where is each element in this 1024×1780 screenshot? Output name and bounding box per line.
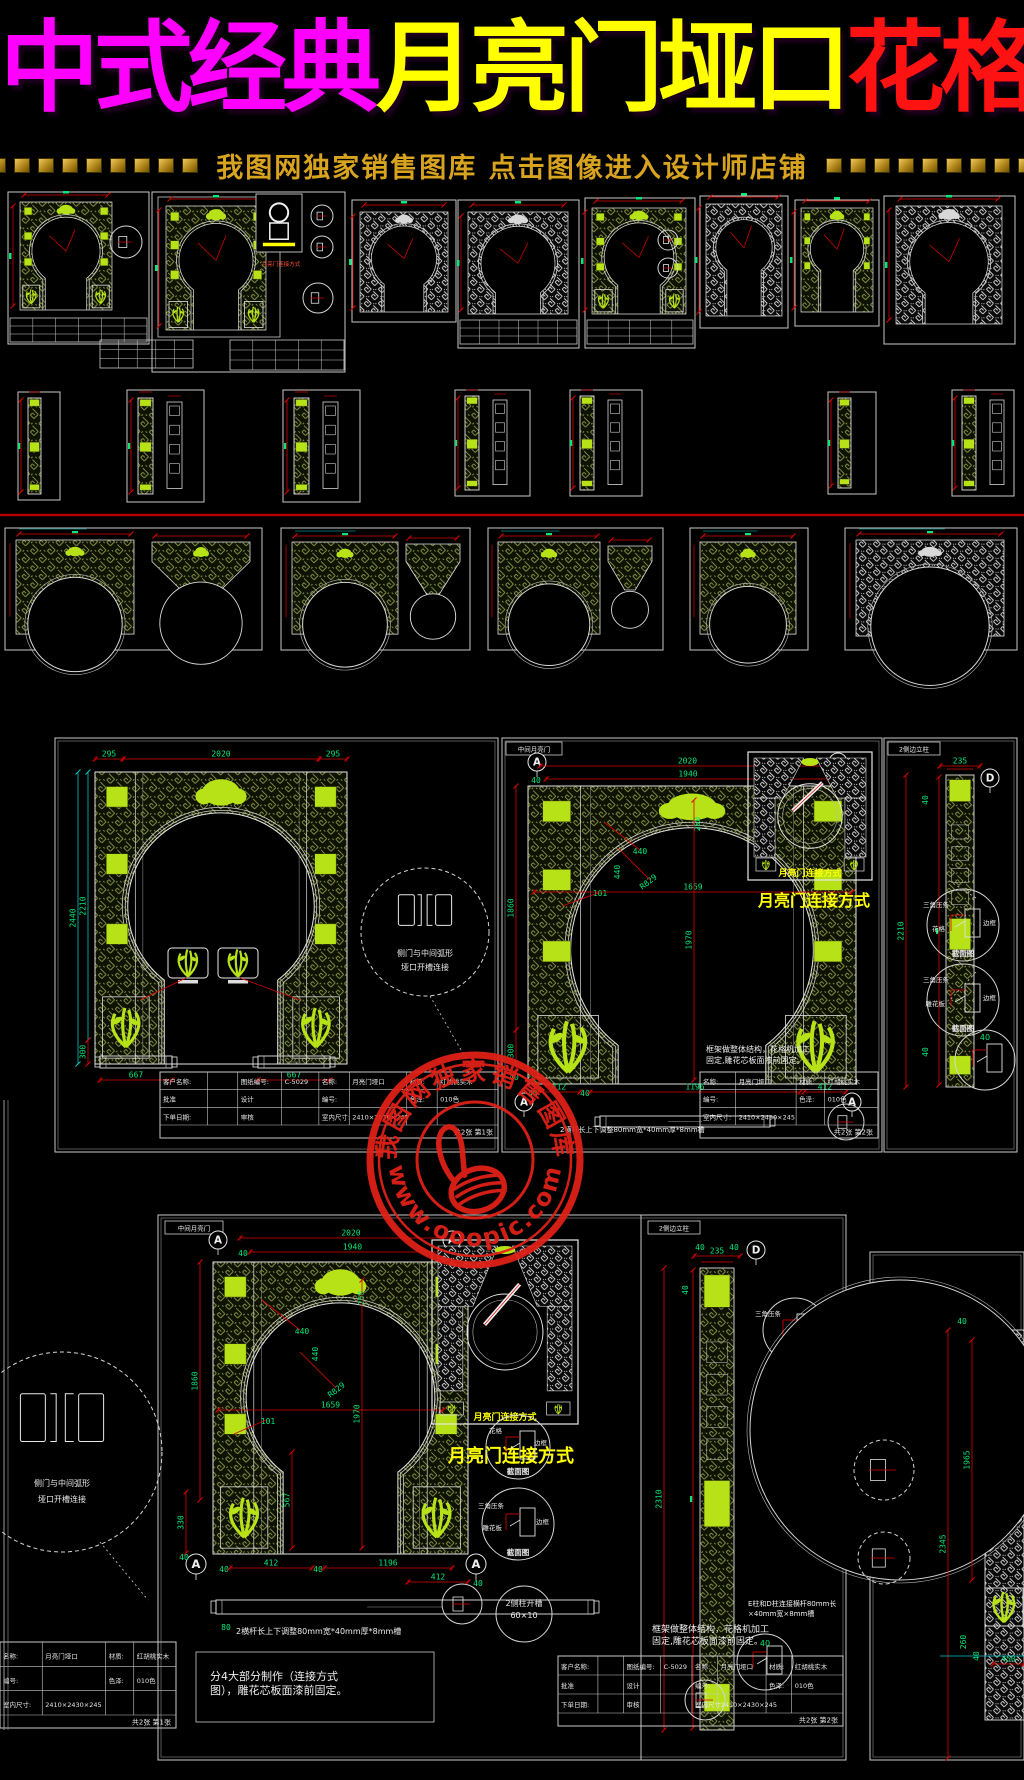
svg-text:2横杆长上下调整80mm宽*40mm厚*8mm槽: 2横杆长上下调整80mm宽*40mm厚*8mm槽 (236, 1626, 401, 1636)
moon-gate-drawing (155, 195, 266, 330)
svg-text:2020: 2020 (211, 750, 230, 759)
svg-text:图纸编号:: 图纸编号: (627, 1662, 655, 1671)
svg-text:月亮门垭口: 月亮门垭口 (739, 1077, 772, 1086)
svg-text:设计: 设计 (627, 1681, 641, 1690)
svg-text:2210: 2210 (897, 921, 906, 940)
svg-text:295: 295 (326, 750, 341, 759)
svg-text:101: 101 (593, 889, 608, 898)
svg-text:40: 40 (219, 1565, 229, 1574)
svg-text:2侧边立柱: 2侧边立柱 (899, 745, 930, 754)
arch-fragment-drawing (492, 531, 600, 669)
svg-text:1659: 1659 (321, 1401, 340, 1410)
svg-text:花格: 花格 (489, 1426, 503, 1435)
svg-text:235: 235 (953, 757, 968, 766)
column-strip-drawing (284, 392, 338, 495)
svg-text:材质:: 材质: (799, 1077, 814, 1086)
svg-text:垭口开槽连接: 垭口开槽连接 (38, 1494, 86, 1504)
svg-text:编号:: 编号: (703, 1095, 718, 1104)
annotation-text: 月亮门连接方式 (262, 260, 301, 268)
note-text: 2横杆长上下调整80mm宽*40mm厚*8mm槽 (236, 1626, 401, 1636)
svg-text:330: 330 (177, 1515, 186, 1530)
svg-text:D: D (986, 772, 995, 784)
moon-gate-drawing (9, 191, 112, 310)
svg-text:1970: 1970 (685, 930, 694, 949)
corner-fragment-drawing (608, 538, 652, 629)
svg-text:2侧柱开槽: 2侧柱开槽 (505, 1598, 542, 1608)
svg-text:2侧边立柱: 2侧边立柱 (659, 1224, 690, 1233)
svg-text:40: 40 (531, 776, 541, 785)
svg-text:截面图: 截面图 (952, 948, 975, 958)
svg-text:编号:: 编号: (3, 1676, 18, 1685)
title-block-table (230, 340, 344, 370)
svg-text:图），雕花芯板面漆前固定。: 图），雕花芯板面漆前固定。 (210, 1683, 348, 1697)
svg-text:40: 40 (980, 1033, 990, 1042)
svg-text:2410×2430×245: 2410×2430×245 (45, 1701, 101, 1709)
svg-text:E柱和D柱连接横杆80mm长: E柱和D柱连接横杆80mm长 (748, 1599, 836, 1608)
dim-label: R829 (326, 1380, 347, 1399)
svg-text:412: 412 (264, 1559, 279, 1568)
moon-gate-drawing (457, 201, 568, 314)
dimension-vertical: 1860 (507, 784, 519, 1033)
detail-circle (442, 1584, 482, 1624)
groove-joint-glyph (20, 1394, 103, 1442)
svg-text:月亮门连接方式: 月亮门连接方式 (472, 1411, 536, 1423)
dim-label: 40 (179, 1553, 189, 1562)
svg-text:40: 40 (313, 1565, 323, 1574)
carved-plaque (168, 948, 208, 984)
svg-text:室内尺寸:: 室内尺寸: (322, 1112, 350, 1121)
svg-text:40: 40 (473, 1579, 483, 1588)
svg-text:60×10: 60×10 (510, 1611, 537, 1620)
svg-text:260: 260 (357, 1291, 366, 1306)
svg-text:批准: 批准 (163, 1095, 177, 1104)
groove-joint-glyph (398, 895, 451, 926)
svg-text:红胡桃实木: 红胡桃实木 (137, 1652, 170, 1661)
dim-label: 40 (238, 1249, 248, 1258)
svg-text:40: 40 (179, 1553, 189, 1562)
note-text: 2横杆长上下调整80mm宽*40mm厚*8mm槽 (560, 1125, 705, 1134)
svg-text:材质:: 材质: (109, 1652, 124, 1661)
svg-text:A: A (214, 1234, 222, 1246)
svg-text:边框: 边框 (534, 1438, 548, 1447)
svg-text:室内尺寸:: 室内尺寸: (3, 1700, 31, 1709)
svg-text:审核: 审核 (627, 1700, 641, 1709)
svg-text:框架做整体结构，花格机加工: 框架做整体结构，花格机加工 (706, 1044, 810, 1054)
svg-text:批准: 批准 (561, 1681, 575, 1690)
dimension-vertical: 1860 (191, 1260, 203, 1503)
svg-text:材质:: 材质: (769, 1662, 784, 1671)
svg-text:2横杆长上下调整80mm宽*40mm厚*8mm槽: 2横杆长上下调整80mm宽*40mm厚*8mm槽 (560, 1125, 705, 1134)
svg-text:室内尺寸:: 室内尺寸: (695, 1700, 723, 1709)
dim-label: 40 (921, 795, 930, 805)
svg-text:80: 80 (221, 1623, 231, 1632)
carved-plaque (218, 948, 258, 984)
dim-label: 80 (221, 1623, 231, 1632)
svg-text:编号:: 编号: (322, 1095, 337, 1104)
svg-text:C-5029: C-5029 (285, 1078, 308, 1086)
svg-text:共2张 第2张: 共2张 第2张 (834, 1128, 873, 1137)
svg-text:截面图: 截面图 (507, 1547, 530, 1557)
dimension-vertical: 1970 (685, 798, 697, 1083)
svg-text:2210: 2210 (79, 896, 88, 915)
svg-text:1970: 1970 (353, 1404, 362, 1423)
detail-circle (311, 236, 333, 258)
svg-text:R829: R829 (638, 872, 659, 891)
connection-icon-box (256, 194, 302, 252)
svg-text:月亮门连接方式: 月亮门连接方式 (777, 867, 841, 879)
svg-text:1659: 1659 (683, 883, 702, 892)
svg-text:567: 567 (283, 1493, 292, 1508)
svg-text:2410×2430×245: 2410×2430×245 (739, 1113, 795, 1121)
arch-fragment-drawing (850, 529, 1004, 688)
svg-text:1196: 1196 (378, 1559, 397, 1568)
dim-label: 440 (311, 1347, 320, 1362)
svg-text:440: 440 (295, 1327, 310, 1336)
svg-text:中间月亮门: 中间月亮门 (178, 1224, 211, 1233)
svg-text:2020: 2020 (678, 757, 697, 766)
svg-text:固定,雕花芯板面漆前固定。: 固定,雕花芯板面漆前固定。 (652, 1635, 763, 1647)
dim-label: R829 (638, 872, 659, 891)
detail-circle (303, 283, 333, 313)
dimension-horizontal: 412 (406, 1573, 471, 1586)
moon-gate-drawing (885, 195, 1002, 324)
dimension-vertical: 2210 (79, 770, 91, 1043)
svg-text:设计: 设计 (241, 1095, 255, 1104)
svg-text:440: 440 (311, 1347, 320, 1362)
title-block-table (460, 320, 577, 344)
moon-gate-drawing (695, 193, 782, 316)
svg-text:侧门与中间弧形: 侧门与中间弧形 (34, 1478, 90, 1488)
svg-text:300: 300 (79, 1045, 88, 1060)
dimension-horizontal: 235 (938, 757, 983, 770)
detail-circle: 三角压条边框雕花板截面图 (478, 1488, 554, 1560)
svg-text:三角压条: 三角压条 (755, 1309, 782, 1318)
note-text: E柱和D柱连接横杆80mm长×40mm宽×8mm槽 (748, 1599, 836, 1618)
dim-label: 40 (531, 776, 541, 785)
svg-text:共2张 第1张: 共2张 第1张 (132, 1718, 171, 1727)
section-marker: A (528, 753, 546, 777)
dim-label: 440 (613, 865, 622, 880)
svg-text:边框: 边框 (536, 1517, 550, 1526)
svg-text:40: 40 (921, 795, 930, 805)
leader-line (100, 1542, 148, 1600)
svg-text:295: 295 (102, 750, 117, 759)
svg-text:667: 667 (129, 1071, 144, 1080)
svg-text:名称:: 名称: (703, 1077, 718, 1086)
svg-text:月亮门垭口: 月亮门垭口 (45, 1652, 78, 1661)
svg-text:440: 440 (633, 847, 648, 856)
svg-text:235: 235 (710, 1247, 725, 1256)
svg-text:412: 412 (431, 1573, 446, 1582)
svg-text:雕花板: 雕花板 (926, 999, 946, 1008)
svg-text:边框: 边框 (983, 993, 997, 1002)
svg-text:40: 40 (695, 1243, 705, 1252)
svg-text:色泽:: 色泽: (769, 1681, 784, 1690)
dimension-horizontal: 1196 (322, 1559, 455, 1572)
watermark-stamp: 我图网独家销售图库www.ooopic.com (370, 1055, 580, 1265)
svg-text:色泽:: 色泽: (109, 1676, 124, 1685)
svg-text:A: A (192, 1557, 201, 1571)
drawing-tag: 2侧边立柱 (648, 1221, 700, 1234)
svg-text:1940: 1940 (678, 770, 697, 779)
svg-text:截面图: 截面图 (952, 1023, 975, 1033)
leader-line (430, 996, 468, 1062)
svg-text:边框: 边框 (983, 918, 997, 927)
plant-carving (762, 860, 769, 870)
dim-label: 260 (357, 1291, 366, 1306)
svg-text:2345: 2345 (939, 1534, 948, 1553)
svg-text:1860: 1860 (507, 898, 516, 917)
detail-circle (311, 205, 333, 227)
column-strip-drawing (455, 390, 507, 491)
title-block-table (587, 320, 693, 344)
dimension-vertical: 567 (283, 1450, 295, 1551)
dim-label: 101 (593, 889, 608, 898)
dim-label: 40 (729, 1243, 739, 1252)
svg-text:40: 40 (681, 1285, 690, 1295)
svg-text:300: 300 (507, 1044, 516, 1059)
svg-text:三角压条: 三角压条 (923, 975, 950, 984)
plant-carving (555, 1404, 562, 1414)
dimension-horizontal: 412 (228, 1559, 315, 1572)
svg-text:2440: 2440 (69, 908, 78, 927)
svg-text:编号:: 编号: (695, 1681, 710, 1690)
moon-gate-drawing (213, 1262, 468, 1554)
svg-text:1940: 1940 (343, 1243, 362, 1252)
dimension-horizontal: 295 (93, 750, 126, 763)
svg-text:月亮门连接方式: 月亮门连接方式 (757, 891, 870, 910)
svg-text:客户名称:: 客户名称: (163, 1077, 191, 1086)
dim-label: 40 (957, 1317, 967, 1326)
svg-text:三角压条: 三角压条 (923, 900, 950, 909)
svg-text:40: 40 (921, 1047, 930, 1057)
svg-text:共2张 第2张: 共2张 第2张 (799, 1716, 838, 1725)
plant-carving (178, 949, 198, 976)
dim-label: 40 (681, 1285, 690, 1295)
dim-label: 40 (921, 1047, 930, 1057)
svg-text:垭口开槽连接: 垭口开槽连接 (401, 962, 449, 972)
svg-text:分4大部分制作（连接方式: 分4大部分制作（连接方式 (210, 1669, 338, 1683)
svg-text:侧门与中间弧形: 侧门与中间弧形 (397, 948, 453, 958)
plant-carving (228, 949, 248, 976)
dimension-vertical: 2440 (69, 770, 81, 1067)
dimension-horizontal: 295 (317, 750, 350, 763)
section-marker: A (209, 1231, 227, 1255)
dimension-horizontal: 1659 (216, 1401, 446, 1414)
dimension-vertical: 2210 (897, 773, 909, 1090)
arch-fragment-drawing (286, 531, 398, 670)
svg-text:色泽:: 色泽: (799, 1095, 814, 1104)
svg-text:260: 260 (959, 1635, 968, 1650)
svg-text:图纸编号:: 图纸编号: (241, 1077, 269, 1086)
title-block-table (10, 318, 147, 342)
svg-text:下单日期:: 下单日期: (561, 1700, 589, 1709)
dimension-vertical: 330 (177, 1490, 189, 1556)
dim-label: 40 (313, 1565, 323, 1574)
svg-text:三角压条: 三角压条 (478, 1501, 505, 1510)
svg-text:月亮门垭口: 月亮门垭口 (352, 1077, 385, 1086)
column-strip-drawing (690, 1262, 734, 1731)
svg-text:固定,雕花芯板面漆前固定。: 固定,雕花芯板面漆前固定。 (706, 1055, 805, 1065)
svg-text:月亮门连接方式: 月亮门连接方式 (262, 260, 301, 268)
column-strip-drawing (828, 392, 851, 489)
svg-text:A: A (472, 1557, 481, 1571)
side-wall-fragment (747, 1277, 1024, 1720)
detail-circle: 侧门与中间弧形垭口开槽连接 (361, 868, 489, 996)
svg-text:1965: 1965 (963, 1450, 972, 1469)
svg-text:R829: R829 (326, 1380, 347, 1399)
moon-gate-drawing (349, 201, 448, 312)
dimension-vertical: 1970 (353, 1278, 365, 1551)
corner-fragment-drawing (406, 536, 460, 640)
moon-gate-drawing (581, 197, 686, 314)
corner-fragment-drawing (152, 534, 250, 665)
section-marker: A (186, 1554, 206, 1580)
svg-text:2310: 2310 (655, 1489, 664, 1508)
svg-text:010色: 010色 (440, 1095, 459, 1104)
svg-text:1196: 1196 (685, 1083, 704, 1092)
svg-text:审核: 审核 (241, 1112, 255, 1121)
svg-text:花格: 花格 (932, 924, 946, 933)
dim-label: 40 (695, 1243, 705, 1252)
title-block-table: 名称:月亮门垭口材质:红胡桃实木编号:色泽:010色室内尺寸:2410×2430… (0, 1642, 176, 1728)
dimension-horizontal: 2020 (121, 750, 322, 763)
svg-text:010色: 010色 (137, 1676, 156, 1685)
svg-text:月亮门垭口: 月亮门垭口 (721, 1662, 754, 1671)
svg-text:红胡桃实木: 红胡桃实木 (795, 1662, 828, 1671)
annotation-text: 月亮门连接方式 (757, 891, 870, 910)
dim-label: 440 (633, 847, 648, 856)
svg-text:D: D (752, 1244, 761, 1256)
section-marker: A (466, 1554, 486, 1580)
dim-label: 40 (473, 1579, 483, 1588)
svg-text:室内尺寸:: 室内尺寸: (703, 1112, 731, 1121)
cad-canvas: 月亮门连接方式295202029524402210300667667侧门与中间弧… (0, 0, 1024, 1780)
svg-text:下单日期:: 下单日期: (163, 1112, 191, 1121)
svg-text:010色: 010色 (828, 1095, 847, 1104)
column-strip-drawing (952, 390, 1004, 491)
arch-fragment-drawing (10, 529, 134, 675)
moon-gate-drawing (790, 197, 873, 312)
column-strip-drawing (570, 390, 622, 491)
svg-text:名称:: 名称: (322, 1077, 337, 1086)
svg-text:截面图: 截面图 (507, 1466, 530, 1476)
dim-label: 260 (959, 1635, 968, 1650)
svg-text:440: 440 (613, 865, 622, 880)
svg-text:2020: 2020 (341, 1229, 360, 1238)
cad-preview-page: 中式经典月亮门垭口花格 我图网独家销售图库 点击图像进入设计师店铺 月亮门连接方… (0, 0, 1024, 1780)
svg-text:010色: 010色 (795, 1681, 814, 1690)
svg-text:中间月亮门: 中间月亮门 (518, 745, 551, 754)
moon-gate-drawing (95, 772, 347, 1064)
svg-text:名称:: 名称: (695, 1662, 710, 1671)
section-marker: D (747, 1241, 765, 1265)
panel-frame (952, 390, 1014, 496)
svg-text:框架做整体结构，花格机加工: 框架做整体结构，花格机加工 (652, 1623, 769, 1635)
svg-text:2410×2430×245: 2410×2430×245 (721, 1701, 777, 1709)
svg-text:40: 40 (729, 1243, 739, 1252)
svg-text:40: 40 (238, 1249, 248, 1258)
panel-frame (828, 392, 876, 494)
svg-text:C-5029: C-5029 (664, 1663, 687, 1671)
arch-fragment-drawing (694, 531, 796, 666)
column-strip-drawing (128, 392, 182, 495)
detail-circle (110, 226, 142, 258)
dim-label: 440 (295, 1327, 310, 1336)
svg-text:客户名称:: 客户名称: (561, 1662, 589, 1671)
svg-text:1860: 1860 (191, 1371, 200, 1390)
drawing-tag: 2侧边立柱 (888, 742, 940, 755)
detail-circle: 侧门与中间弧形垭口开槽连接 (0, 1352, 162, 1552)
svg-text:红胡桃实木: 红胡桃实木 (828, 1077, 861, 1086)
svg-text:40: 40 (957, 1317, 967, 1326)
dim-label: 40 (219, 1565, 229, 1574)
svg-text:×40mm宽×8mm槽: ×40mm宽×8mm槽 (748, 1609, 814, 1618)
section-marker: D (981, 769, 999, 793)
column-strip-drawing (18, 392, 41, 495)
note-text: 分4大部分制作（连接方式图），雕花芯板面漆前固定。 (210, 1669, 348, 1697)
svg-text:名称:: 名称: (3, 1652, 18, 1661)
svg-text:雕花板: 雕花板 (483, 1523, 503, 1532)
